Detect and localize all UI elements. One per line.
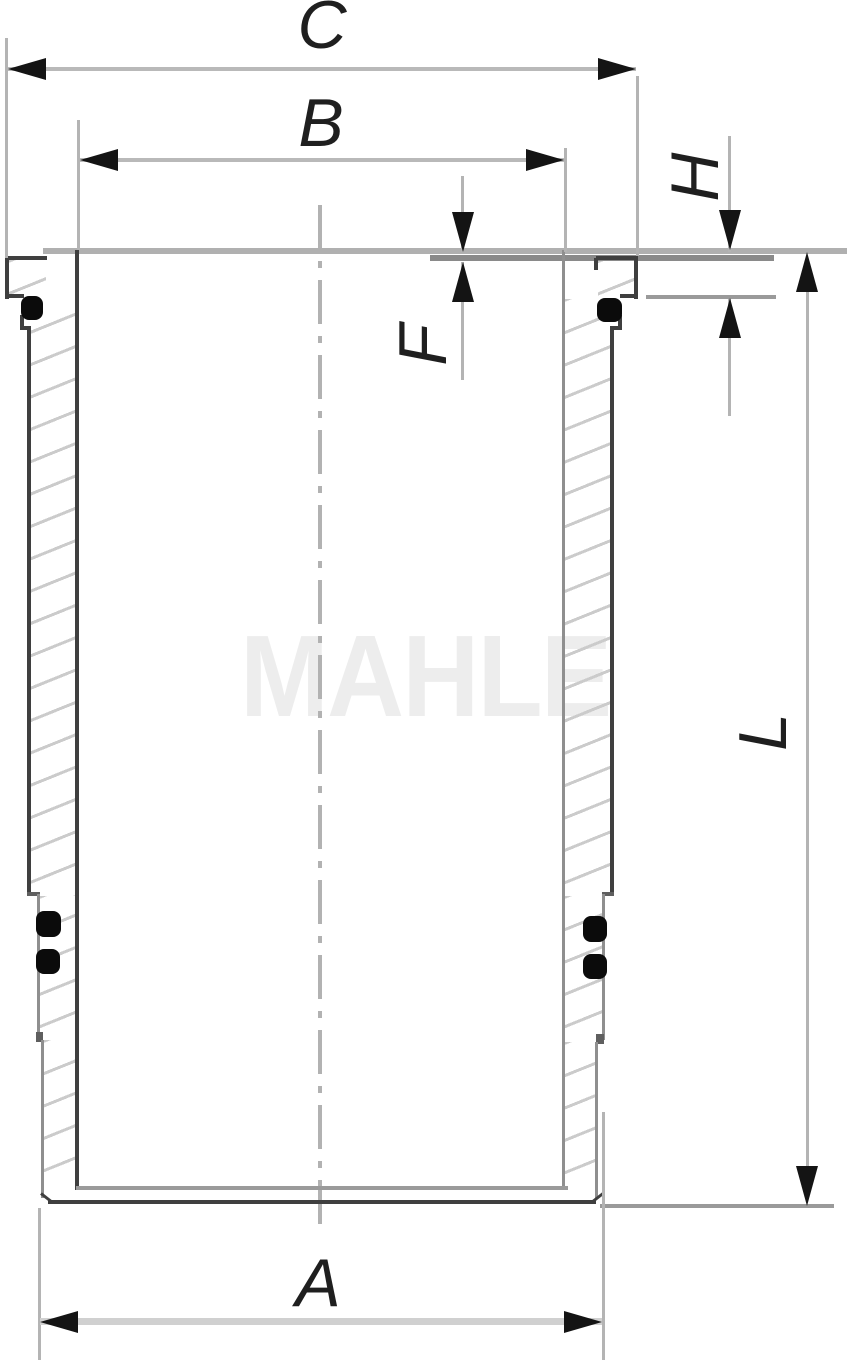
bottom-inner-edge-line (76, 1186, 568, 1190)
left-outer-wall-lower (41, 1040, 44, 1198)
l-dim-arrow-up (796, 252, 818, 292)
right-flange-rim-line (596, 256, 638, 260)
left-flange-underside (5, 294, 24, 298)
l-dim-arrow-down (796, 1166, 818, 1206)
left-flange-outer-edge (5, 257, 9, 299)
f-dim-arrow-down (452, 212, 474, 252)
right-flange-underside (620, 294, 638, 298)
right-flange-relief-edge (594, 258, 598, 270)
b-dim-extension-left (77, 120, 80, 250)
right-outer-wall-upper (610, 328, 614, 896)
h-dim-arrow-up (719, 298, 741, 338)
left-wall-hatch-lower (43, 1040, 77, 1187)
right-oring-1 (583, 916, 607, 942)
right-oring-2 (583, 954, 607, 979)
bottom-outer-edge-line (48, 1200, 596, 1204)
left-flange-rim-line (5, 256, 47, 260)
b-dim-arrow-left (80, 149, 118, 171)
a-dim-label: A (268, 1248, 368, 1318)
c-dim-arrow-left (8, 58, 46, 80)
a-dim-extension-left (38, 1208, 41, 1360)
c-dim-line (8, 67, 636, 71)
right-flange-hatch (598, 260, 636, 296)
right-outer-wall-lower (595, 1042, 598, 1198)
b-dim-arrow-right (526, 149, 564, 171)
left-flange-hatch (8, 260, 46, 296)
b-dim-extension-right (564, 148, 567, 252)
f-dim-label: F (388, 295, 458, 395)
cylinder-liner-drawing: MAHLE C (0, 0, 850, 1368)
c-dim-arrow-right (598, 58, 636, 80)
right-upper-seal-ring (597, 298, 622, 322)
c-dim-label: C (272, 0, 372, 60)
left-outer-wall-upper (27, 328, 31, 896)
left-wall-hatch-upper (29, 299, 77, 896)
a-dim-arrow-left (40, 1311, 78, 1333)
right-wall-hatch-upper (564, 299, 612, 896)
left-oring-1 (36, 911, 61, 937)
a-dim-extension-right (602, 1112, 605, 1360)
c-dim-extension-right (636, 76, 639, 256)
centerline (318, 205, 322, 1233)
left-upper-seal-ring (21, 296, 43, 320)
right-wall-hatch-lower (564, 1042, 597, 1187)
left-oring-2 (36, 949, 60, 974)
right-flange-outer-edge (634, 257, 638, 299)
right-bore-wall (562, 250, 565, 1190)
h-dim-label: H (660, 127, 730, 227)
b-dim-label: B (271, 88, 371, 158)
l-dim-label: L (728, 682, 798, 782)
l-dim-shaft (806, 280, 809, 1176)
h-dim-reference-line (646, 295, 776, 299)
mahle-watermark: MAHLE (240, 618, 610, 734)
a-dim-arrow-right (564, 1311, 602, 1333)
left-bore-wall (75, 250, 79, 1190)
